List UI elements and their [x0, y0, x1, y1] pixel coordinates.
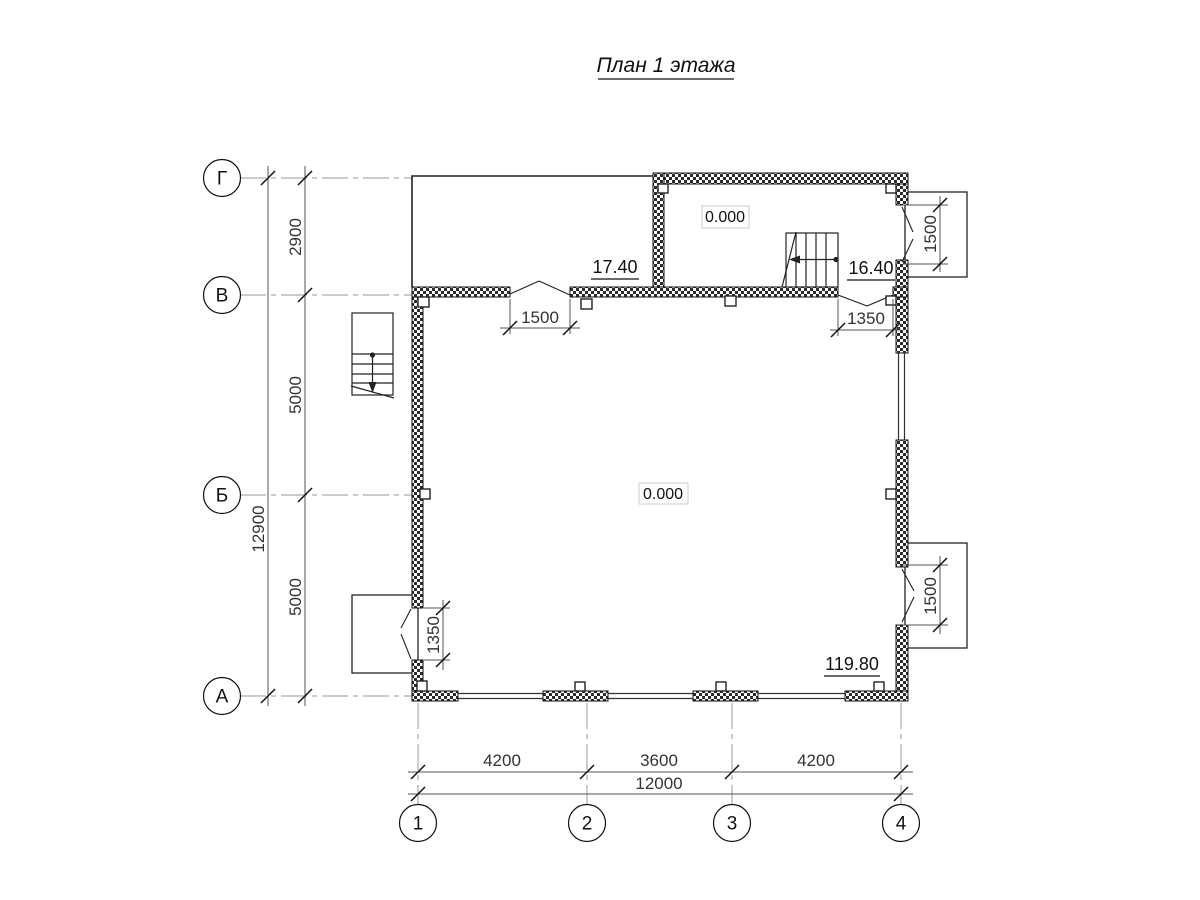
- grid-label-row-v: В: [216, 286, 229, 307]
- grid-label-row-a: А: [216, 687, 229, 708]
- dim-bottom-seg1: 4200: [483, 751, 521, 770]
- grid-label-col-3: 3: [727, 814, 738, 835]
- stub: [886, 296, 896, 305]
- grid-label-col-4: 4: [896, 814, 907, 835]
- door-entry-top: [510, 281, 570, 295]
- level-entry: 0.000: [705, 209, 745, 226]
- room-labels: 0.000 0.000 17.40 16.40 119.80: [591, 206, 895, 676]
- dim-left-seg2: 5000: [286, 376, 305, 414]
- area-main: 119.80: [825, 654, 879, 674]
- dim-porch-bottom-left: 1350: [424, 616, 443, 654]
- wall-top-right-room-top: [653, 173, 908, 184]
- wall-bottom-pier1: [412, 691, 458, 701]
- dim-left-seg3: 5000: [286, 578, 305, 616]
- grid-label-col-2: 2: [582, 814, 593, 835]
- stairs-top-right: [782, 232, 838, 287]
- walls: [412, 173, 908, 701]
- grid-axis-lines: [240, 178, 901, 804]
- sheet-title: План 1 этажа: [596, 54, 735, 79]
- dim-bottom-total: 12000: [635, 774, 682, 793]
- windows: [458, 353, 908, 699]
- stub: [658, 184, 668, 193]
- page-title: План 1 этажа: [596, 54, 735, 77]
- dimension-texts: 2900 5000 5000 12900 4200 3600 4200 1200…: [249, 215, 940, 793]
- stair-arrow-dot: [834, 258, 838, 262]
- door-porch-top-right: [902, 207, 913, 262]
- wall-right-seg2: [896, 440, 908, 567]
- stairs-left: [351, 313, 394, 398]
- stub: [420, 489, 430, 499]
- wall-right-seg3: [896, 625, 908, 701]
- wall-row-v-seg2: [570, 287, 838, 297]
- wall-right-upper-1: [896, 184, 908, 205]
- stub: [886, 489, 896, 499]
- porch-bottom-left: [352, 595, 418, 673]
- stub: [417, 681, 427, 691]
- stub: [418, 297, 429, 307]
- drawing-sheet: План 1 этажа: [0, 0, 1200, 900]
- area-room-left: 17.40: [592, 257, 637, 277]
- stub: [725, 296, 736, 306]
- wall-bottom-pier2: [543, 691, 608, 701]
- floor-plan-canvas: План 1 этажа: [0, 0, 1200, 900]
- wall-bottom-pier4: [845, 691, 908, 701]
- wall-bottom-pier3: [693, 691, 758, 701]
- door-entry-top-right: [838, 295, 893, 306]
- door-porch-bottom-left: [401, 609, 411, 659]
- level-main: 0.000: [643, 486, 683, 503]
- dim-bottom-seg3: 4200: [797, 751, 835, 770]
- dim-entry-top: 1500: [521, 308, 559, 327]
- dim-left-seg1: 2900: [286, 218, 305, 256]
- stub: [575, 682, 585, 691]
- stub: [886, 184, 896, 193]
- dim-porch-bottom-right: 1500: [921, 577, 940, 615]
- door-porch-bottom-right: [902, 569, 914, 622]
- area-room-right: 16.40: [848, 258, 893, 278]
- stub: [874, 682, 884, 691]
- dim-porch-top-right: 1500: [921, 215, 940, 253]
- stub: [716, 682, 726, 691]
- grid-bubbles: Г В Б А 1 2 3 4: [204, 160, 920, 842]
- dim-bottom-seg2: 3600: [640, 751, 678, 770]
- stair-arrow-head: [789, 256, 800, 264]
- wall-row-v-seg1: [412, 287, 510, 297]
- dim-entry-top-right: 1350: [847, 309, 885, 328]
- stub: [581, 299, 592, 309]
- stair-arrow-dot: [371, 353, 375, 357]
- wall-left-upper: [412, 297, 423, 608]
- grid-label-row-b: Б: [216, 486, 228, 507]
- grid-label-col-1: 1: [413, 814, 424, 835]
- dim-left-total: 12900: [249, 505, 268, 552]
- grid-label-row-g: Г: [217, 169, 227, 190]
